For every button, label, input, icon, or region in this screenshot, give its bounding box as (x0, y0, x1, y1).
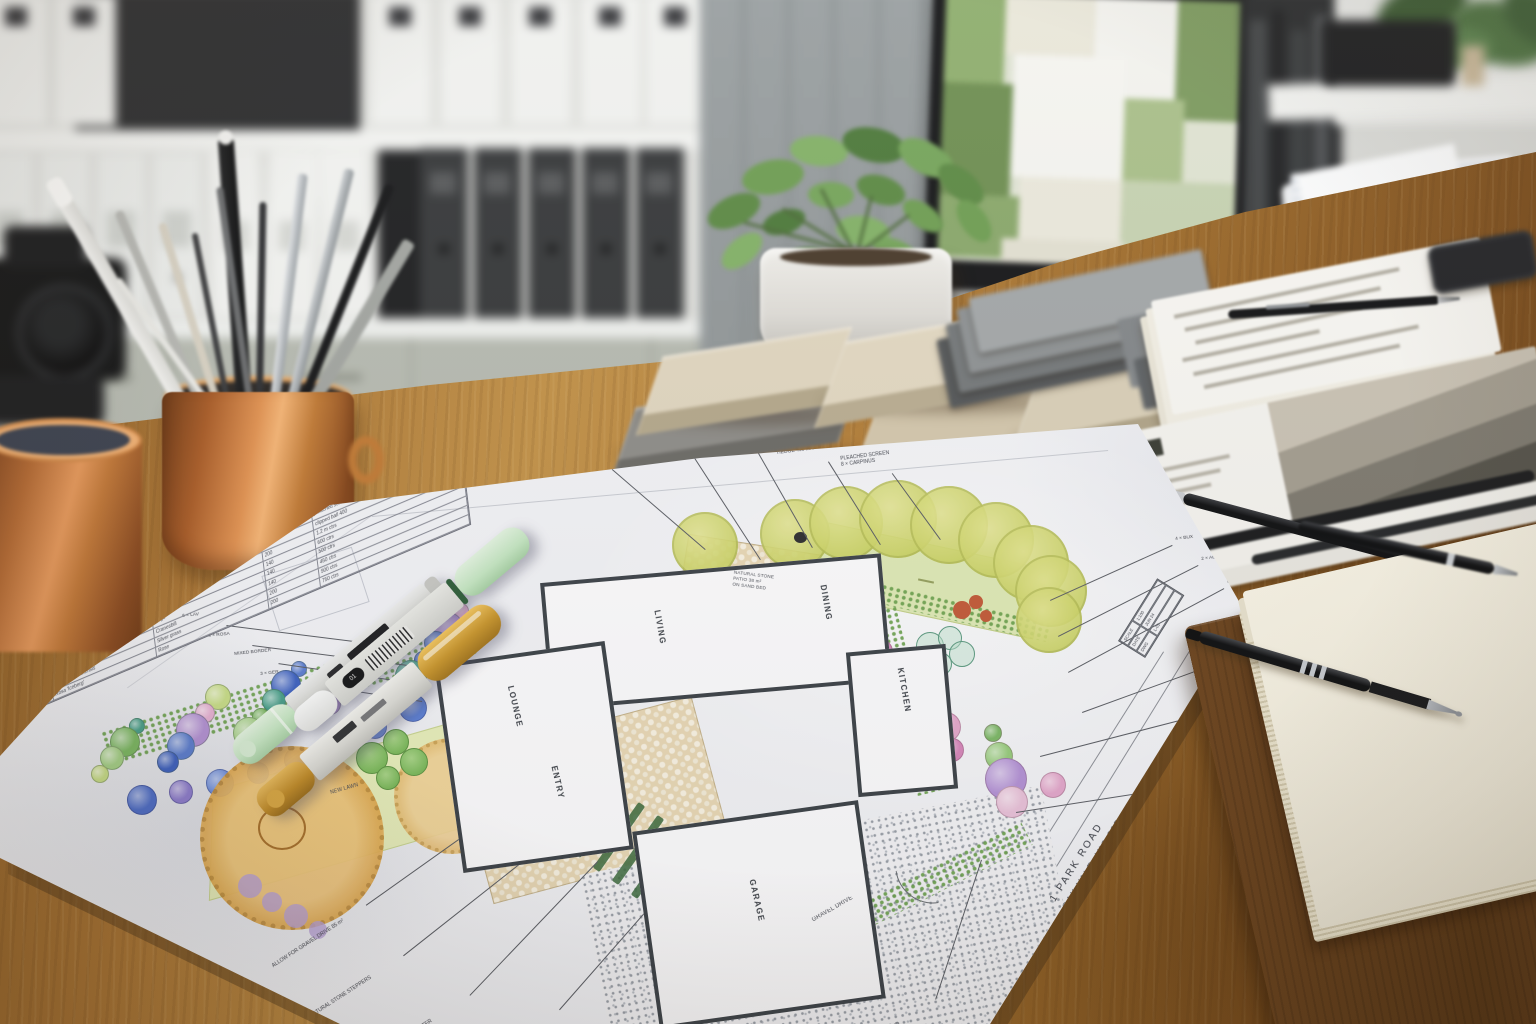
pen-ball-tip (1455, 711, 1463, 718)
notebook-top-sheet (1242, 488, 1536, 929)
desk-scene: ORNAMENTAL PEAR 3 × 75 LSTONE PAVING ON … (0, 0, 1536, 1024)
foreground-objects: 01 (0, 0, 1536, 1024)
notebook-group (1234, 488, 1536, 954)
marker-mint-2: 01 (286, 513, 548, 741)
tail-tip (263, 786, 288, 811)
cap-tip (236, 737, 259, 760)
